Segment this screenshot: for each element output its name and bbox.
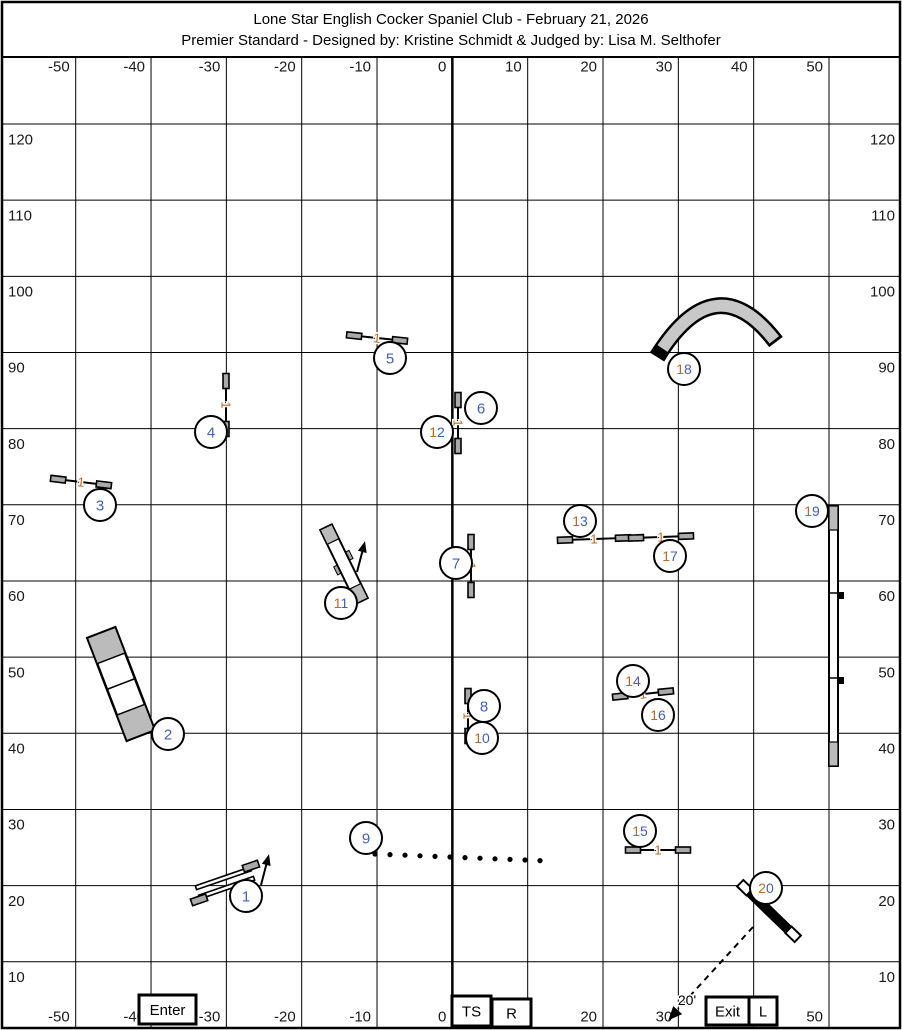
x-axis-label-top--40: -40 [123, 58, 145, 75]
obstacle-number-text: 8 [480, 698, 488, 715]
obstacle-number-text: 17 [662, 548, 678, 564]
weave-pole [492, 856, 497, 861]
obstacle-number-19: 19 [796, 495, 828, 527]
obstacle-number-10: 10 [466, 722, 498, 754]
y-axis-label-right-80: 80 [878, 436, 895, 453]
a-frame-2 [87, 627, 154, 740]
weave-pole [507, 857, 512, 862]
jump-wing [628, 535, 643, 542]
jump-wing [658, 688, 674, 696]
jump-bar-count-15: 1 [654, 843, 661, 858]
y-axis-label-left-20: 20 [8, 893, 25, 910]
y-axis-label-right-120: 120 [870, 131, 895, 148]
x-axis-label-top-20: 20 [580, 58, 597, 75]
dogwalk-support-tick [838, 592, 844, 599]
obstacle-number-4: 4 [195, 416, 227, 448]
weave-pole [432, 854, 437, 859]
weave-pole [387, 852, 392, 857]
jump-wing [50, 475, 66, 483]
jump-wing [468, 535, 474, 550]
direction-arrow-11-shaft [357, 549, 363, 572]
ts-box: TS [452, 996, 491, 1026]
x-axis-label-bottom-0: 0 [438, 1008, 446, 1025]
x-axis-label-top-50: 50 [806, 58, 823, 75]
weave-poles-9 [372, 851, 542, 863]
y-axis-label-left-40: 40 [8, 741, 25, 758]
x-axis-label-bottom--50: -50 [48, 1008, 70, 1025]
x-axis-label-top--30: -30 [199, 58, 221, 75]
weave-pole [477, 856, 482, 861]
weave-pole [447, 854, 452, 859]
direction-arrow-1-head [262, 853, 273, 866]
jump-bar-count-13: 1 [590, 531, 598, 546]
obstacle-number-text: 11 [334, 595, 349, 611]
x-axis-label-bottom--10: -10 [349, 1008, 371, 1025]
obstacle-number-text: 1 [242, 888, 250, 905]
exit-box-label: Exit [715, 1003, 741, 1020]
obstacle-number-2: 2 [152, 718, 184, 750]
jump-bar-count-5: 1 [373, 330, 382, 346]
obstacle-number-1: 1 [230, 880, 262, 912]
y-axis-label-left-80: 80 [8, 436, 25, 453]
weave-pole [417, 853, 422, 858]
obstacle-number-text: 14 [625, 673, 641, 689]
x-axis-label-top--20: -20 [274, 58, 296, 75]
x-axis-label-bottom-50: 50 [806, 1008, 823, 1025]
direction-arrow-1-shaft [261, 862, 267, 885]
weave-pole [537, 858, 542, 863]
obstacle-number-9: 9 [350, 822, 382, 854]
obstacle-number-8: 8 [468, 690, 500, 722]
y-axis-label-left-30: 30 [8, 817, 25, 834]
y-axis-label-left-90: 90 [8, 360, 25, 377]
weave-pole [402, 853, 407, 858]
y-axis-label-right-90: 90 [878, 360, 895, 377]
y-axis-label-left-60: 60 [8, 588, 25, 605]
jump-bar-count-3: 1 [76, 474, 85, 490]
y-axis-label-left-50: 50 [8, 664, 25, 681]
course-title: Lone Star English Cocker Spaniel Club - … [2, 9, 900, 30]
dogwalk-support-tick [838, 677, 844, 684]
obstacle-number-6: 6 [465, 392, 497, 424]
obstacle-number-text: 6 [477, 400, 485, 417]
y-axis-label-right-60: 60 [878, 588, 895, 605]
obstacle-number-11: 11 [325, 587, 357, 619]
course-map-page: -50-50-40-40-30-30-20-20-10-100010102020… [0, 0, 902, 1030]
obstacle-number-13: 13 [564, 505, 596, 537]
course-subtitle: Premier Standard - Designed by: Kristine… [2, 30, 900, 51]
jump-wing [557, 537, 572, 544]
jump-wing [190, 894, 207, 906]
jump-wing [346, 332, 362, 340]
y-axis-label-right-40: 40 [878, 741, 895, 758]
obstacle-number-20: 20 [750, 872, 782, 904]
ts-box-label: TS [462, 1003, 481, 1020]
y-axis-label-right-10: 10 [878, 969, 895, 986]
y-axis-label-right-30: 30 [878, 817, 895, 834]
obstacle-number-14: 14 [617, 665, 649, 697]
y-axis-label-right-70: 70 [878, 512, 895, 529]
obstacle-number-3: 3 [84, 489, 116, 521]
obstacle-number-18: 18 [668, 353, 700, 385]
obstacle-number-text: 10 [474, 730, 490, 746]
obstacle-number-text: 18 [676, 361, 692, 377]
jump-wing [676, 847, 691, 853]
y-axis-label-right-50: 50 [878, 664, 895, 681]
x-axis-label-top--50: -50 [48, 58, 70, 75]
obstacle-number-12: 12 [421, 416, 453, 448]
y-axis-label-left-120: 120 [8, 131, 33, 148]
obstacle-number-5: 5 [374, 342, 406, 374]
jump-wing [223, 374, 229, 389]
course-header: Lone Star English Cocker Spaniel Club - … [2, 2, 900, 56]
jump-wing [455, 439, 461, 454]
r-box-label: R [506, 1005, 517, 1022]
obstacle-number-17: 17 [654, 540, 686, 572]
jump-wing [678, 533, 693, 540]
exit-distance-label: 20' [678, 992, 696, 1008]
x-axis-label-bottom-20: 20 [580, 1008, 597, 1025]
obstacle-number-7: 7 [440, 547, 472, 579]
exit-box: Exit [706, 997, 749, 1025]
obstacle-number-text: 20 [758, 880, 774, 896]
obstacle-number-text: 7 [452, 555, 460, 572]
y-axis-label-left-10: 10 [8, 969, 25, 986]
dogwalk-contact [829, 742, 838, 766]
x-axis-label-top-40: 40 [731, 58, 748, 75]
obstacle-number-16: 16 [642, 699, 674, 731]
x-axis-label-top-30: 30 [656, 58, 673, 75]
direction-arrow-11-head [358, 540, 369, 553]
obstacle-number-15: 15 [624, 815, 656, 847]
x-axis-label-top-0: 0 [438, 58, 446, 75]
y-axis-label-left-100: 100 [8, 284, 33, 301]
obstacle-number-text: 2 [164, 726, 172, 743]
y-axis-label-right-110: 110 [871, 207, 895, 224]
jump-wing [455, 393, 461, 408]
l-box-label: L [759, 1003, 767, 1020]
dogwalk-contact [829, 506, 838, 530]
obstacle-number-text: 15 [632, 823, 648, 839]
obstacle-number-text: 16 [650, 707, 666, 723]
jump-bar-count-4: 1 [218, 401, 233, 408]
obstacle-number-text: 5 [386, 350, 394, 367]
y-axis-label-left-110: 110 [8, 207, 32, 224]
obstacle-number-text: 4 [207, 424, 215, 441]
y-axis-label-right-100: 100 [870, 284, 895, 301]
obstacle-number-text: 9 [362, 830, 370, 847]
x-axis-label-top-10: 10 [505, 58, 522, 75]
weave-pole [522, 857, 527, 862]
r-box: R [492, 999, 531, 1027]
y-axis-label-left-70: 70 [8, 512, 25, 529]
weave-pole [462, 855, 467, 860]
obstacle-number-text: 13 [572, 513, 588, 529]
course-map-canvas: -50-50-40-40-30-30-20-20-10-100010102020… [0, 0, 902, 1030]
x-axis-label-bottom--20: -20 [274, 1008, 296, 1025]
x-axis-label-bottom--30: -30 [199, 1008, 221, 1025]
y-axis-label-right-20: 20 [878, 893, 895, 910]
obstacle-number-text: 19 [804, 503, 820, 519]
enter-box: Enter [139, 995, 196, 1024]
jump-wing [242, 860, 259, 872]
jump-wing [468, 583, 474, 598]
enter-box-label: Enter [150, 1002, 186, 1019]
obstacle-number-text: 3 [96, 497, 104, 514]
jump-wing [96, 481, 112, 489]
obstacle-number-text: 12 [429, 424, 445, 440]
l-box: L [749, 997, 777, 1025]
dogwalk-body-19 [829, 506, 838, 766]
x-axis-label-top--10: -10 [349, 58, 371, 75]
